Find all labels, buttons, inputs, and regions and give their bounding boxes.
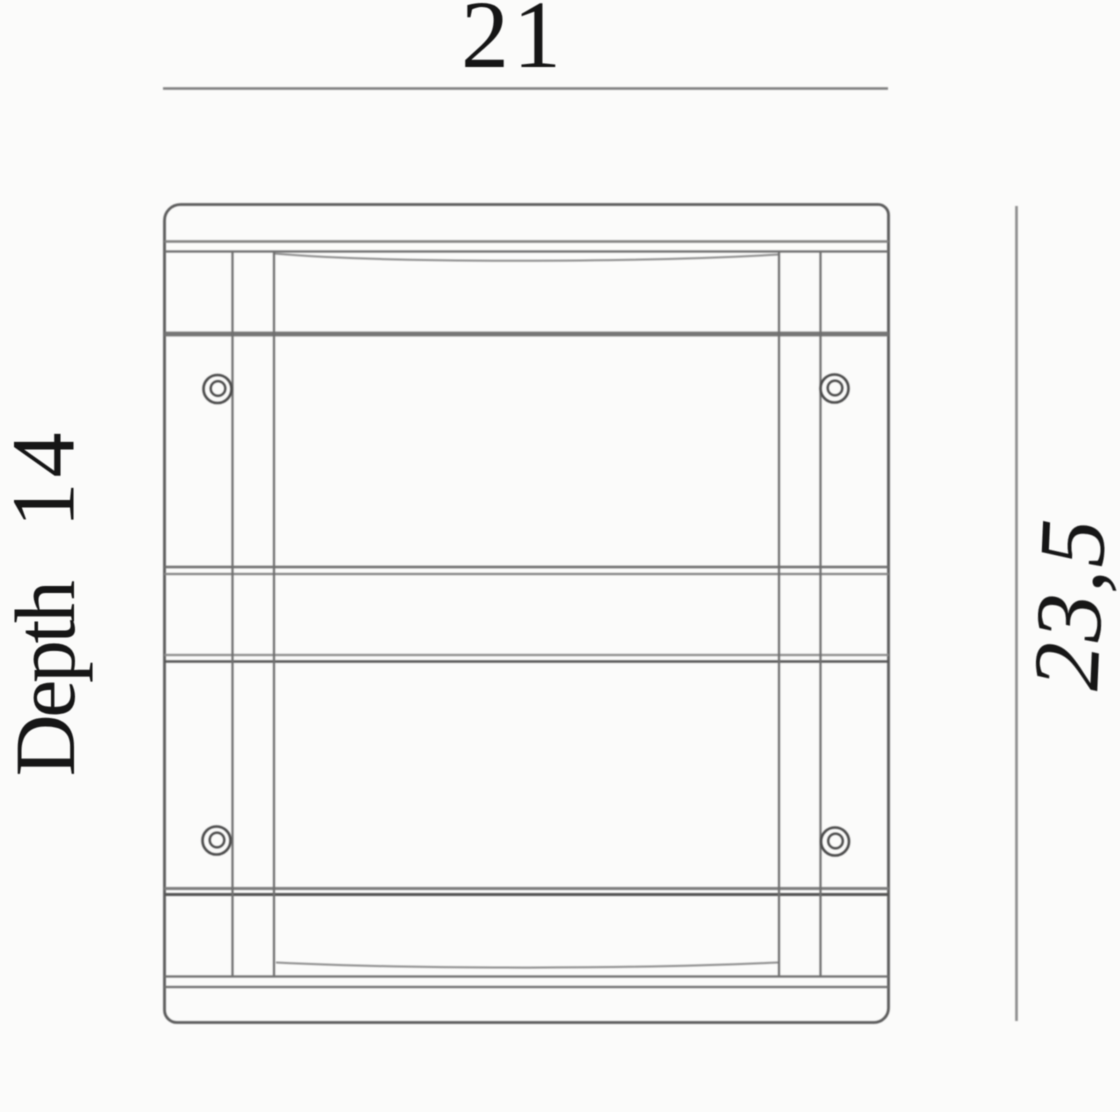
svg-text:21: 21	[461, 0, 565, 88]
svg-text:23,5: 23,5	[1014, 515, 1120, 692]
svg-text:Depth: Depth	[0, 581, 93, 776]
svg-text:14: 14	[0, 428, 94, 528]
